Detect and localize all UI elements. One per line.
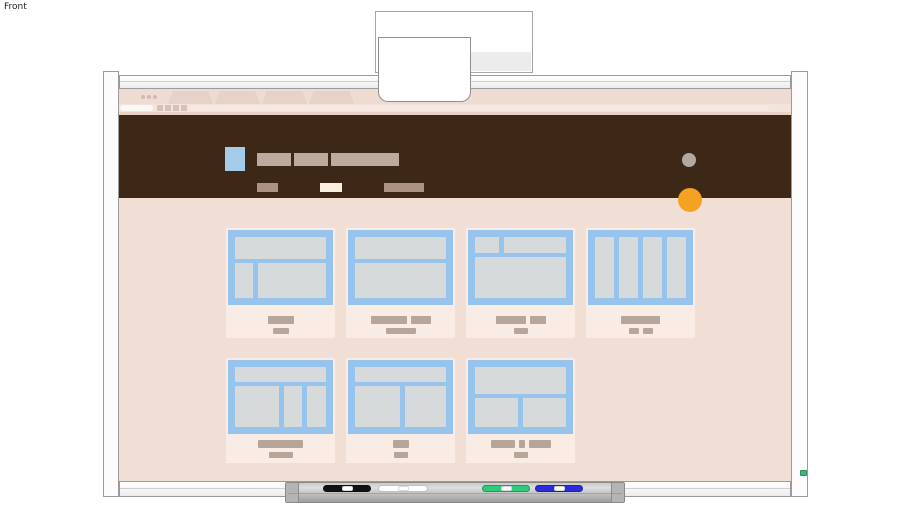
site-logo[interactable] [225,147,245,171]
thumbnail-row [355,386,446,427]
card-thumbnail [468,230,573,305]
card-thumbnail [228,360,333,434]
template-card-header-three-columns[interactable] [226,358,335,463]
thumbnail-block [405,386,446,427]
caption-row [491,440,551,448]
subnav-item-active[interactable] [320,183,342,192]
caption-row [393,440,409,448]
caption-row [496,316,546,324]
back-button[interactable] [120,105,153,111]
notification-badge[interactable] [678,188,702,212]
card-thumbnail [348,360,453,434]
thumbnail-row [355,237,446,259]
nav-item[interactable] [331,153,399,166]
eraser[interactable] [378,485,428,492]
thumbnail-block [284,386,302,427]
subnav-item[interactable] [384,183,424,192]
caption-bar [273,328,289,334]
card-caption [621,316,660,334]
thumbnail-row [475,257,566,298]
toolbar-button-icon[interactable] [173,105,179,111]
pen-band [554,486,565,491]
browser-tab[interactable] [215,91,260,104]
browser-tabs [168,91,354,104]
browser-toolbar [119,104,791,112]
board-frame-right [791,71,808,497]
card-caption [496,316,546,334]
nav-item[interactable] [294,153,328,166]
caption-row [273,328,289,334]
caption-bar [268,316,294,324]
template-card-four-columns[interactable] [586,228,695,338]
thumbnail-block [235,367,326,382]
thumbnail-block [355,386,400,427]
model-viewport: Front [0,0,910,512]
main-nav [257,153,399,166]
caption-row [394,452,408,458]
template-card-header-hero[interactable] [346,228,455,338]
caption-bar [269,452,293,458]
subnav-item[interactable] [257,183,278,192]
user-avatar[interactable] [682,153,696,167]
caption-bar [386,328,416,334]
cards-row-1 [226,228,695,338]
nav-item[interactable] [257,153,291,166]
browser-tab[interactable] [168,91,213,104]
thumbnail-block [355,263,446,298]
caption-bar [491,440,515,448]
template-card-toolbar-hero[interactable] [466,228,575,338]
toolbar-button-icon[interactable] [165,105,171,111]
caption-bar [496,316,526,324]
caption-bar [514,452,528,458]
card-thumbnail [348,230,453,305]
caption-row [269,452,293,458]
card-caption [393,440,409,458]
power-led-icon [800,470,807,476]
thumbnail-row [235,263,326,298]
browser-tab[interactable] [309,91,354,104]
black-pen[interactable] [323,485,371,492]
caption-row [258,440,303,448]
pen-band [398,486,409,491]
blue-pen[interactable] [535,485,583,492]
traffic-dot-icon[interactable] [141,95,145,99]
board-screen [119,89,791,481]
caption-bar [371,316,407,324]
cards-row-2 [226,358,575,463]
green-pen[interactable] [482,485,530,492]
thumbnail-block [595,237,614,298]
thumbnail-block [355,237,446,259]
card-thumbnail [468,360,573,434]
thumbnail-block [235,237,326,259]
caption-row [514,328,528,334]
caption-bar [394,452,408,458]
traffic-dots [141,95,157,99]
thumbnail-row [355,263,446,298]
thumbnail-row [235,386,326,427]
caption-bar [529,440,551,448]
thumbnail-block [355,367,446,382]
caption-bar [621,316,660,324]
thumbnail-block [504,237,566,253]
thumbnail-row [355,367,446,382]
thumbnail-block [307,386,326,427]
caption-bar [411,316,431,324]
card-caption [371,316,431,334]
thumbnail-block [619,237,638,298]
thumbnail-row [475,367,566,394]
browser-tab[interactable] [262,91,307,104]
thumbnail-block [475,398,518,427]
card-caption [491,440,551,458]
address-bar[interactable] [189,105,769,111]
template-card-hero-two-blocks[interactable] [466,358,575,463]
caption-row [621,316,660,324]
projector-mount-shadow [470,52,531,71]
card-caption [268,316,294,334]
thumbnail-block [235,263,253,298]
toolbar-buttons [157,105,187,111]
thumbnail-block [235,386,279,427]
traffic-dot-icon[interactable] [153,95,157,99]
caption-row [514,452,528,458]
thumbnail-block [475,237,499,253]
pen-band [501,486,512,491]
card-caption [258,440,303,458]
caption-bar [519,440,525,448]
thumbnail-row [475,237,566,253]
pens [286,483,624,502]
thumbnail-block [258,263,326,298]
thumbnail-block [643,237,662,298]
card-thumbnail [228,230,333,305]
view-label: Front [4,2,27,12]
thumbnail-row [235,237,326,259]
projector-mount-front [378,37,471,102]
caption-bar [258,440,303,448]
traffic-dot-icon[interactable] [147,95,151,99]
board-frame-left [103,71,119,497]
caption-bar [643,328,653,334]
caption-bar [393,440,409,448]
sub-nav [257,183,424,192]
thumbnail-row [475,398,566,427]
caption-row [629,328,653,334]
template-card-header-two-columns[interactable] [346,358,455,463]
thumbnail-row [595,237,686,298]
thumbnail-block [475,367,566,394]
toolbar-button-icon[interactable] [181,105,187,111]
caption-bar [514,328,528,334]
thumbnail-block [475,257,566,298]
toolbar-button-icon[interactable] [157,105,163,111]
caption-bar [530,316,546,324]
caption-bar [629,328,639,334]
thumbnail-block [667,237,686,298]
pen-tray [285,482,625,503]
thumbnail-block [523,398,566,427]
caption-row [371,316,431,324]
template-card-header-sidebar-content[interactable] [226,228,335,338]
pen-band [342,486,353,491]
card-thumbnail [588,230,693,305]
caption-row [386,328,416,334]
site-header [119,115,791,198]
thumbnail-row [235,367,326,382]
caption-row [268,316,294,324]
